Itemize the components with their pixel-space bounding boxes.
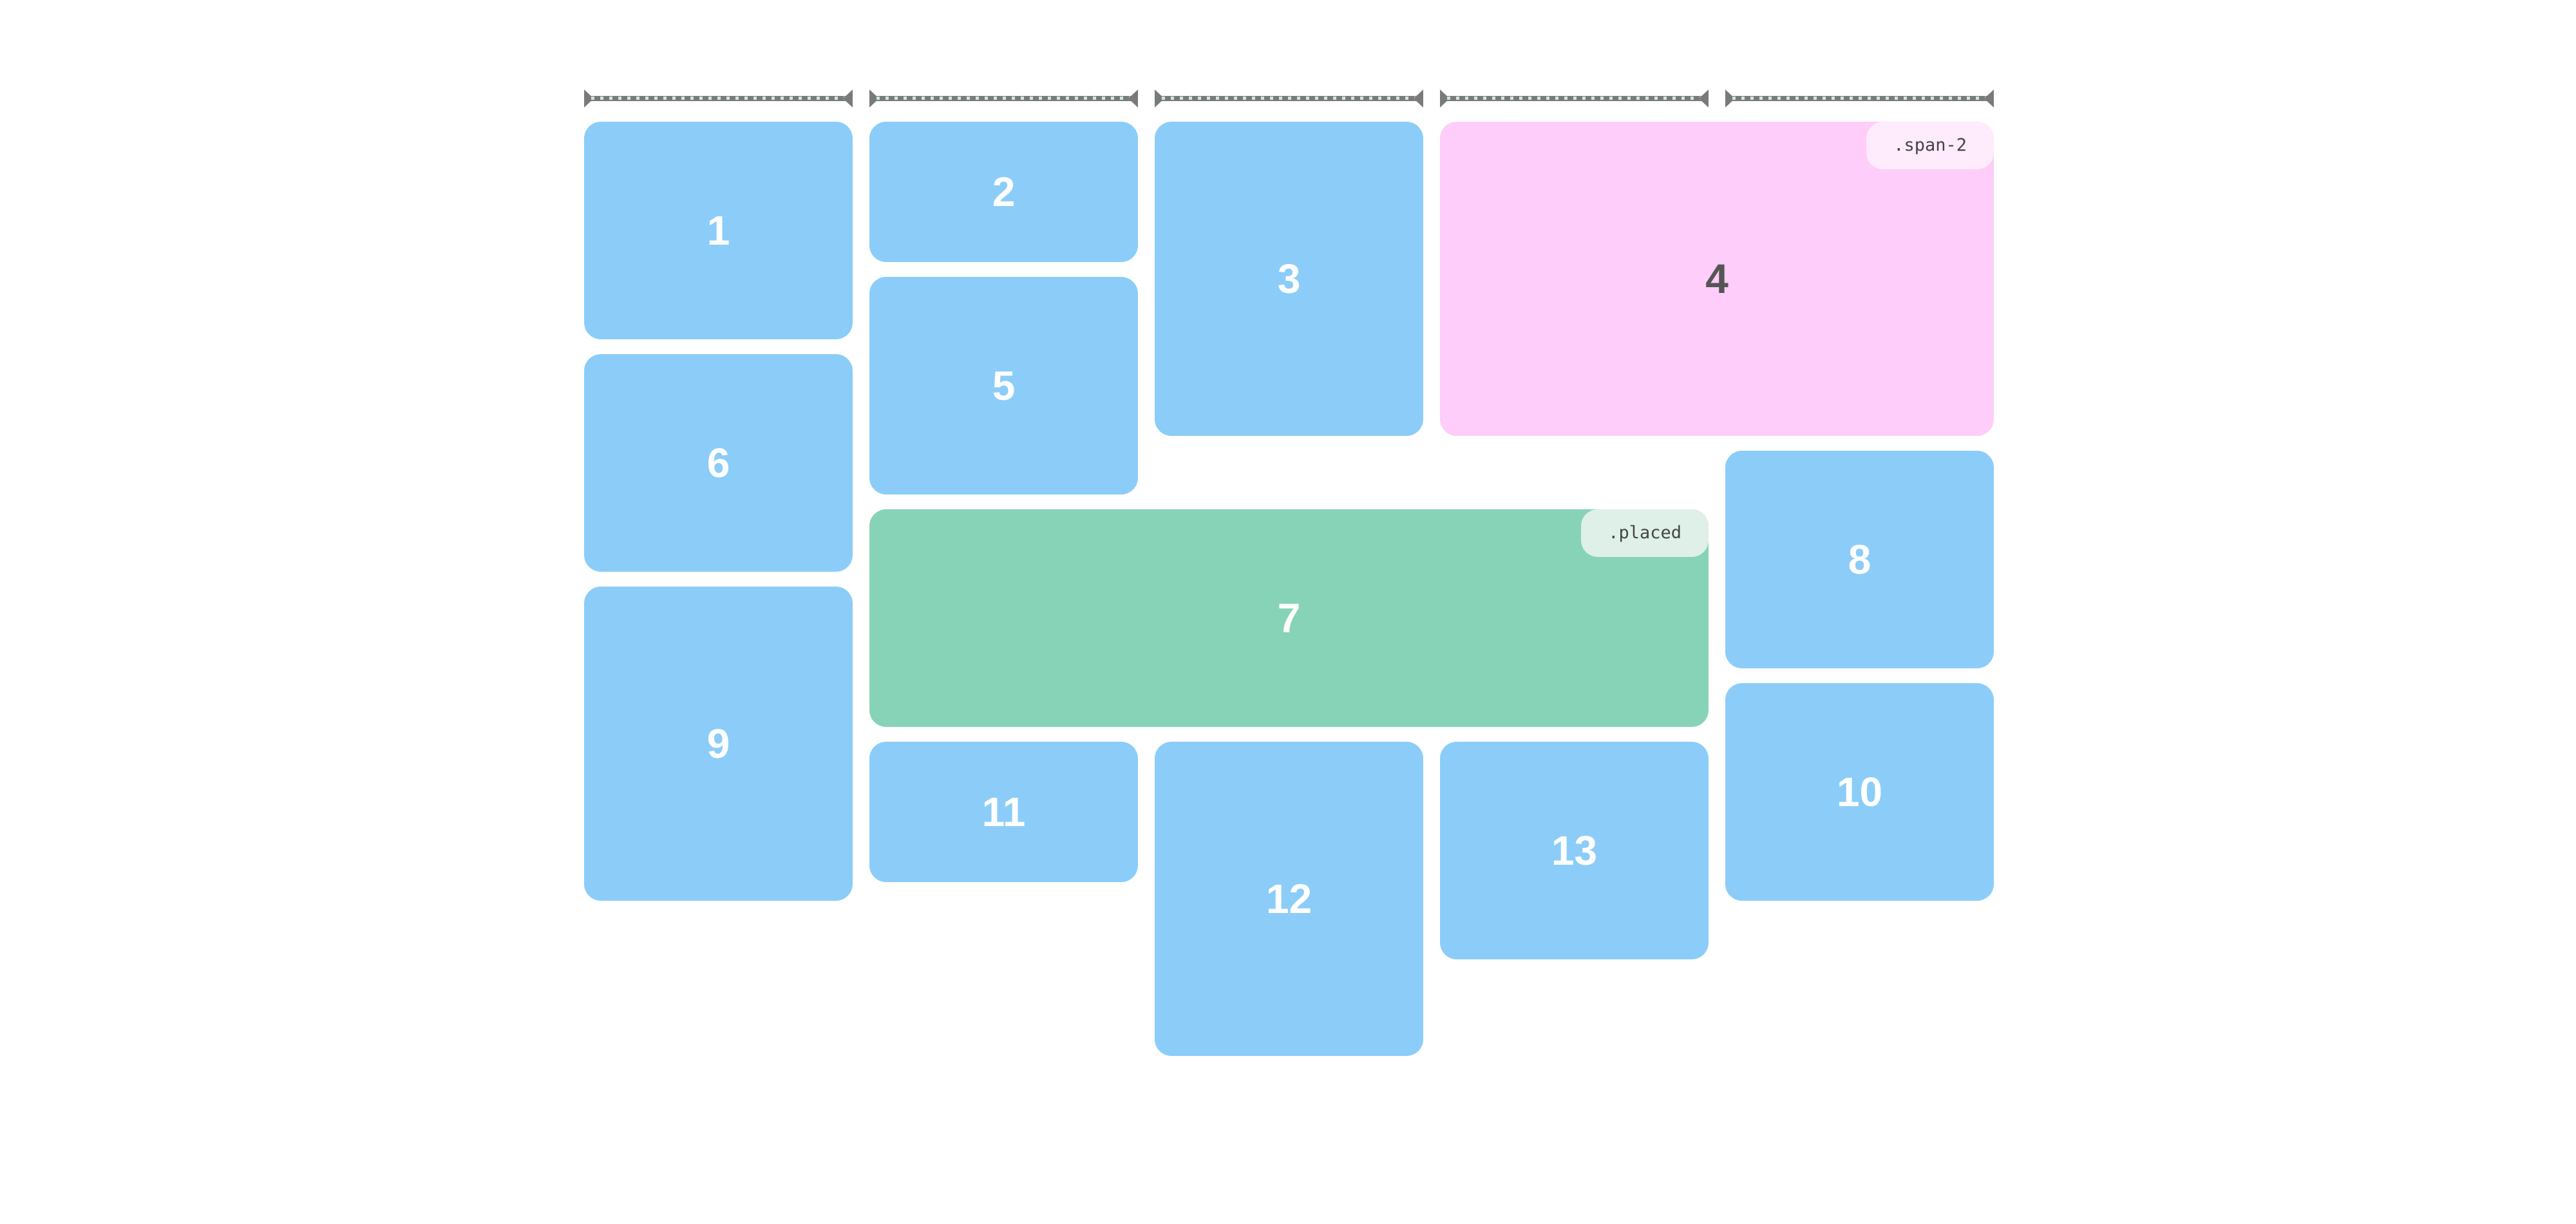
grid-item-6: 6	[584, 354, 853, 572]
ruler-dots	[876, 97, 1131, 100]
column-ruler-5	[1725, 89, 1994, 108]
item-number: 4	[1705, 258, 1728, 299]
ruler-dots	[1447, 97, 1701, 100]
ruler-dots	[1162, 97, 1416, 100]
ruler-bar	[1157, 96, 1421, 101]
item-number: 11	[982, 791, 1026, 833]
column-ruler-3	[1155, 89, 1423, 108]
ruler-arrow-right-icon	[1414, 89, 1423, 108]
grid-item-13: 13	[1440, 742, 1709, 959]
item-number: 7	[1278, 598, 1301, 639]
ruler-bar	[1727, 96, 1992, 101]
grid-item-4-span-2: 4 .span-2	[1440, 122, 1994, 436]
column-ruler-2	[869, 89, 1138, 108]
item-number: 1	[707, 210, 730, 251]
grid-item-5: 5	[869, 277, 1138, 494]
item-number: 2	[992, 171, 1016, 212]
item-number: 5	[992, 365, 1016, 406]
item-number: 12	[1266, 878, 1312, 919]
grid-item-10: 10	[1725, 683, 1994, 901]
ruler-bar	[586, 96, 851, 101]
item-number: 8	[1848, 539, 1871, 580]
ruler-bar	[1442, 96, 1707, 101]
grid-item-11: 11	[869, 742, 1138, 882]
span-2-badge: .span-2	[1866, 122, 1994, 169]
grid-item-1: 1	[584, 122, 853, 339]
ruler-dots	[1732, 97, 1987, 100]
grid-item-2: 2	[869, 122, 1138, 262]
column-ruler-1	[584, 89, 853, 108]
grid-item-3: 3	[1155, 122, 1423, 436]
ruler-bar	[871, 96, 1136, 101]
masonry-demo-page: 1 2 3 4 .span-2 5 6 7 .placed 8 9 10 11 …	[0, 0, 2576, 1224]
item-number: 3	[1278, 258, 1301, 299]
grid-item-8: 8	[1725, 451, 1994, 668]
item-number: 9	[707, 723, 730, 764]
item-number: 6	[707, 442, 730, 484]
item-number: 10	[1837, 771, 1882, 813]
ruler-arrow-right-icon	[1699, 89, 1709, 108]
ruler-arrow-right-icon	[843, 89, 853, 108]
grid-item-12: 12	[1155, 742, 1423, 1056]
item-number: 13	[1551, 830, 1597, 871]
grid-item-7-placed: 7 .placed	[869, 509, 1709, 727]
grid-item-9: 9	[584, 587, 853, 901]
ruler-arrow-right-icon	[1128, 89, 1138, 108]
column-ruler-4	[1440, 89, 1709, 108]
ruler-arrow-right-icon	[1984, 89, 1994, 108]
placed-badge: .placed	[1581, 509, 1709, 557]
ruler-dots	[591, 97, 846, 100]
